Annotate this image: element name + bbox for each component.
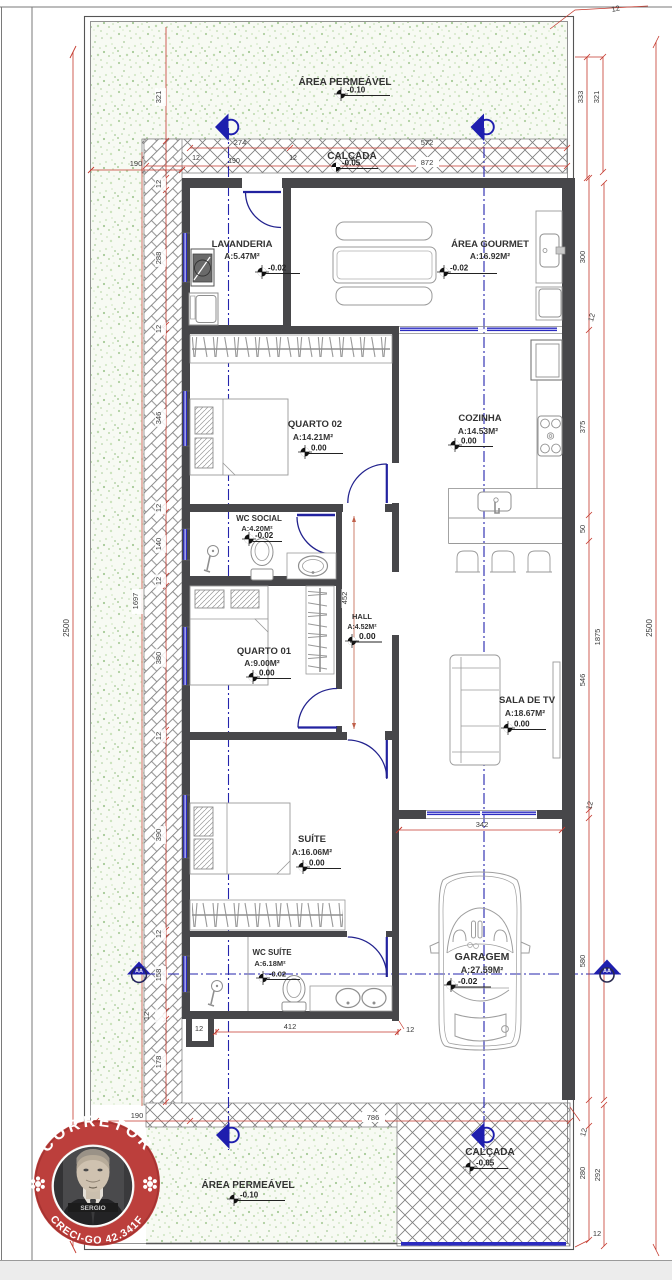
svg-text:A:14.53M²: A:14.53M² [458,426,498,436]
svg-text:572: 572 [421,138,434,147]
svg-text:ÁREA PERMEÁVEL: ÁREA PERMEÁVEL [202,1178,295,1191]
svg-text:-0.02: -0.02 [450,264,469,273]
svg-text:333: 333 [576,91,585,104]
svg-text:QUARTO 01: QUARTO 01 [237,646,292,657]
svg-text:158: 158 [154,969,163,982]
svg-text:274: 274 [234,138,247,147]
svg-text:-0.02: -0.02 [268,264,287,273]
svg-text:CALÇADA: CALÇADA [465,1147,514,1158]
svg-text:1875: 1875 [593,629,602,646]
svg-text:12: 12 [142,1012,151,1020]
svg-text:WC SUÍTE: WC SUÍTE [252,948,292,957]
svg-text:A:9.00M²: A:9.00M² [244,658,280,668]
svg-text:0.00: 0.00 [359,631,376,641]
svg-text:AA: AA [603,969,611,975]
svg-text:375: 375 [578,421,587,434]
svg-text:SERGIO: SERGIO [80,1205,105,1212]
svg-text:WC SOCIAL: WC SOCIAL [236,514,282,523]
svg-text:-0.10: -0.10 [347,86,366,95]
svg-text:12: 12 [154,504,163,512]
svg-text:A:5.47M²: A:5.47M² [224,251,260,261]
svg-text:140: 140 [154,538,163,551]
svg-text:288: 288 [154,252,163,265]
svg-text:-0.05: -0.05 [476,1159,495,1168]
svg-text:546: 546 [578,674,587,687]
svg-text:0.00: 0.00 [461,437,477,446]
svg-text:12: 12 [192,155,200,162]
svg-text:HALL: HALL [352,612,372,621]
svg-text:12: 12 [154,180,163,188]
svg-text:321: 321 [592,91,601,104]
svg-text:-0.02: -0.02 [255,531,274,540]
svg-text:COZINHA: COZINHA [458,413,501,424]
svg-text:1697: 1697 [131,593,140,610]
svg-text:A:16.06M²: A:16.06M² [292,847,332,857]
svg-text:50: 50 [578,525,587,533]
svg-text:12: 12 [195,1024,203,1033]
svg-text:ÁREA PERMEÁVEL: ÁREA PERMEÁVEL [299,75,392,88]
svg-text:0.00: 0.00 [259,669,275,678]
svg-text:190: 190 [130,159,143,168]
svg-text:-0.05: -0.05 [342,159,361,168]
svg-text:786: 786 [367,1113,380,1122]
svg-text:390: 390 [154,829,163,842]
svg-text:190: 190 [131,1111,144,1120]
svg-text:A:4.52M²: A:4.52M² [347,624,377,631]
svg-text:12: 12 [289,155,297,162]
svg-text:342: 342 [476,820,489,829]
svg-text:12: 12 [593,1229,601,1238]
svg-text:300: 300 [578,251,587,264]
svg-text:LAVANDERIA: LAVANDERIA [212,239,273,250]
svg-text:412: 412 [284,1022,297,1031]
svg-text:346: 346 [154,412,163,425]
svg-text:12: 12 [154,930,163,938]
svg-text:292: 292 [593,1169,602,1182]
svg-text:872: 872 [421,158,434,167]
svg-text:580: 580 [578,955,587,968]
svg-text:380: 380 [154,652,163,665]
svg-text:SUÍTE: SUÍTE [298,834,326,845]
svg-text:SALA DE TV: SALA DE TV [499,695,556,706]
svg-text:12: 12 [154,732,163,740]
svg-text:GARAGEM: GARAGEM [455,951,510,963]
svg-text:2500: 2500 [645,619,654,637]
svg-text:QUARTO 02: QUARTO 02 [288,419,342,430]
svg-text:ÁREA GOURMET: ÁREA GOURMET [451,239,529,250]
svg-text:AA: AA [135,969,143,975]
svg-text:-0.10: -0.10 [240,1191,259,1200]
svg-text:321: 321 [154,91,163,104]
svg-text:A:6.18M²: A:6.18M² [254,959,286,968]
svg-text:12: 12 [154,325,163,333]
svg-text:190: 190 [228,158,240,165]
svg-text:0.00: 0.00 [309,859,325,868]
svg-text:12: 12 [154,577,163,585]
svg-text:0.00: 0.00 [311,444,327,453]
svg-text:2500: 2500 [62,619,71,637]
svg-text:-0.02: -0.02 [269,970,286,979]
svg-text:178: 178 [154,1056,163,1069]
svg-text:12: 12 [406,1025,414,1034]
svg-text:A:16.92M²: A:16.92M² [470,251,510,261]
svg-text:452: 452 [340,592,349,605]
svg-text:A:14.21M²: A:14.21M² [293,432,333,442]
svg-text:A:27.59M²: A:27.59M² [461,965,504,975]
svg-text:A:18.67M²: A:18.67M² [505,708,545,718]
svg-text:0.00: 0.00 [514,720,530,729]
svg-text:280: 280 [578,1167,587,1180]
svg-text:-0.02: -0.02 [458,976,478,986]
